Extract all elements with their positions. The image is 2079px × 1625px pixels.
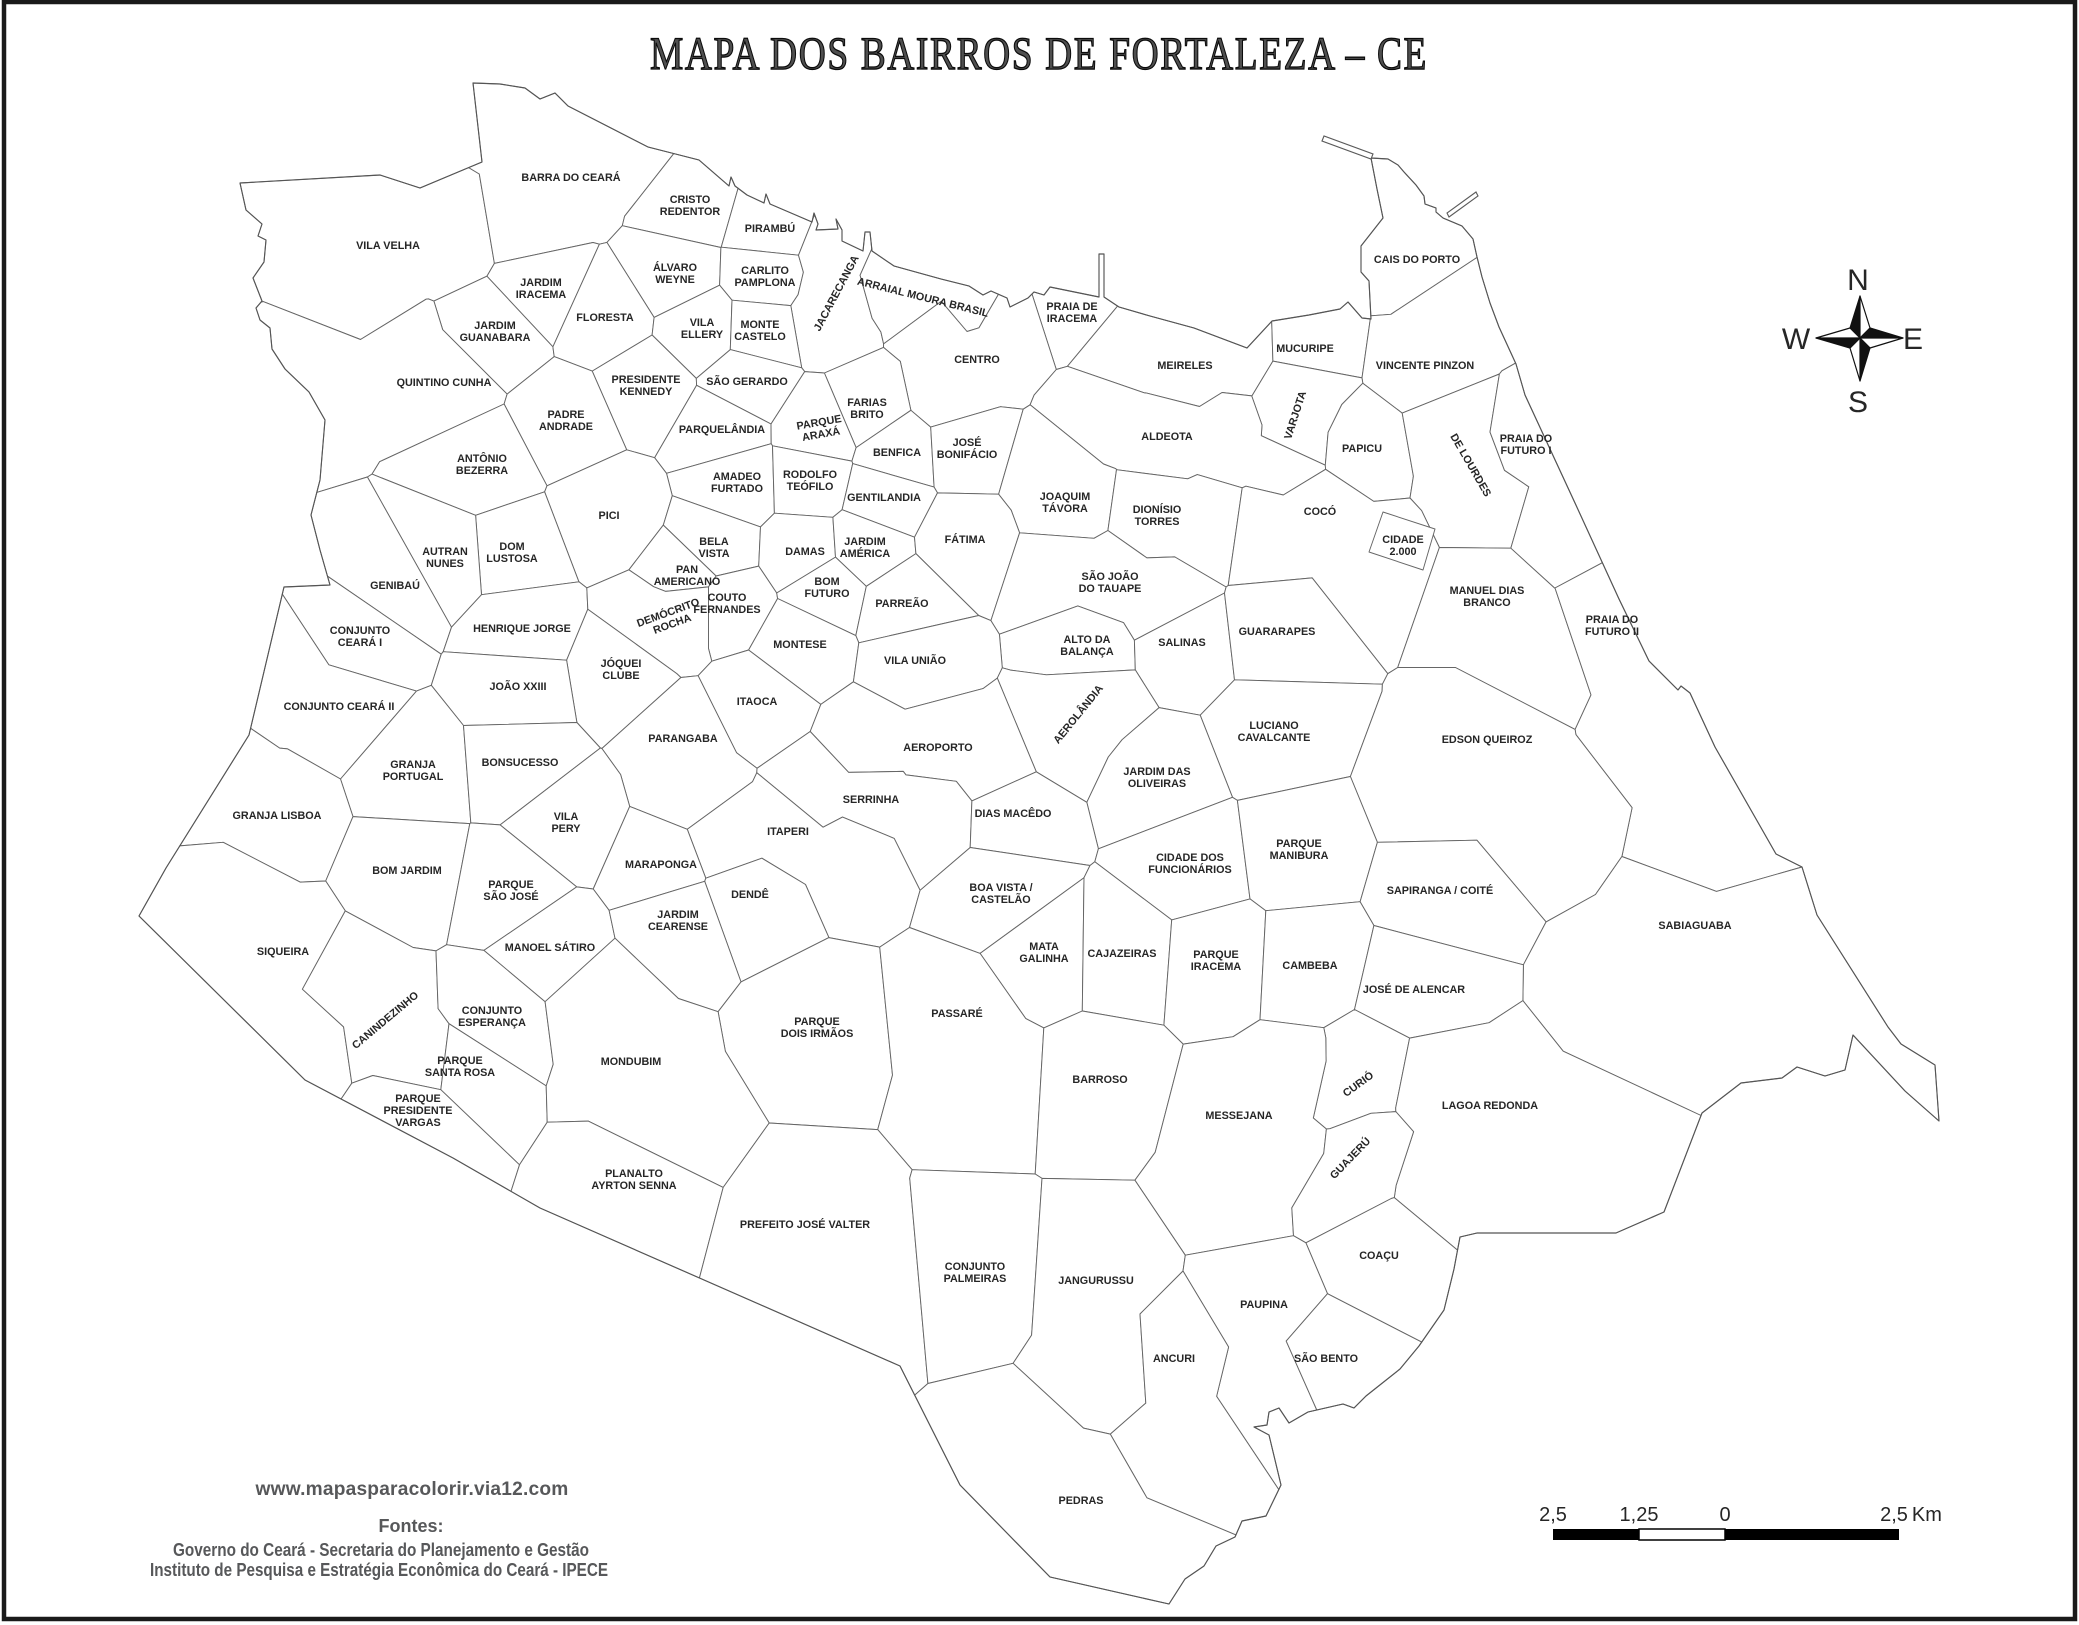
svg-text:VINCENTE PINZON: VINCENTE PINZON	[1376, 360, 1475, 372]
svg-text:ALTO DA: ALTO DA	[1064, 634, 1111, 646]
svg-text:GRANJA: GRANJA	[390, 759, 436, 771]
svg-text:JOSÉ DE ALENCAR: JOSÉ DE ALENCAR	[1363, 983, 1465, 996]
svg-text:AEROPORTO: AEROPORTO	[903, 742, 972, 754]
svg-text:COAÇU: COAÇU	[1359, 1250, 1399, 1262]
svg-text:GALINHA: GALINHA	[1019, 953, 1068, 965]
svg-text:Governo do Ceará - Secretaria: Governo do Ceará - Secretaria do Planeja…	[173, 1540, 589, 1560]
svg-text:TORRES: TORRES	[1135, 516, 1180, 528]
svg-text:DOM: DOM	[499, 541, 524, 553]
svg-text:2.000: 2.000	[1389, 546, 1416, 558]
svg-text:CEARÁ I: CEARÁ I	[338, 636, 382, 649]
svg-text:BARROSO: BARROSO	[1072, 1074, 1127, 1086]
svg-text:ANCURI: ANCURI	[1153, 1353, 1195, 1365]
svg-text:BOM: BOM	[814, 576, 839, 588]
svg-text:DIAS MACÊDO: DIAS MACÊDO	[975, 807, 1052, 820]
svg-text:CONJUNTO: CONJUNTO	[462, 1005, 522, 1017]
svg-text:PEDRAS: PEDRAS	[1059, 1495, 1104, 1507]
svg-text:PAUPINA: PAUPINA	[1240, 1299, 1288, 1311]
svg-text:ITAPERI: ITAPERI	[767, 826, 809, 838]
svg-text:ESPERANÇA: ESPERANÇA	[458, 1017, 526, 1029]
svg-text:PICI: PICI	[599, 510, 620, 522]
svg-text:VARGAS: VARGAS	[395, 1117, 440, 1129]
svg-text:ÁLVARO: ÁLVARO	[653, 261, 697, 274]
svg-text:PARANGABA: PARANGABA	[648, 733, 718, 745]
svg-text:0: 0	[1719, 1504, 1730, 1526]
svg-text:PARQUE: PARQUE	[437, 1055, 482, 1067]
svg-text:HENRIQUE JORGE: HENRIQUE JORGE	[473, 623, 571, 635]
svg-text:JANGURUSSU: JANGURUSSU	[1058, 1275, 1134, 1287]
svg-text:PARQUE: PARQUE	[1193, 949, 1238, 961]
svg-text:2,5 Km: 2,5 Km	[1880, 1504, 1942, 1526]
svg-text:AMERICANO: AMERICANO	[654, 576, 721, 588]
svg-text:PAN: PAN	[676, 564, 698, 576]
svg-text:VILA UNIÃO: VILA UNIÃO	[884, 654, 946, 667]
svg-text:AMÉRICA: AMÉRICA	[840, 547, 891, 560]
svg-text:JARDIM: JARDIM	[520, 277, 561, 289]
svg-text:GUARARAPES: GUARARAPES	[1239, 626, 1316, 638]
svg-text:LUCIANO: LUCIANO	[1249, 720, 1298, 732]
svg-text:CONJUNTO: CONJUNTO	[330, 625, 390, 637]
svg-text:PARQUE: PARQUE	[1276, 838, 1321, 850]
svg-text:PORTUGAL: PORTUGAL	[383, 771, 444, 783]
svg-text:BONIFÁCIO: BONIFÁCIO	[937, 448, 998, 461]
svg-text:MONTESE: MONTESE	[773, 639, 826, 651]
svg-text:JARDIM DAS: JARDIM DAS	[1123, 766, 1190, 778]
svg-text:SIQUEIRA: SIQUEIRA	[257, 946, 309, 958]
svg-text:SAPIRANGA / COITÉ: SAPIRANGA / COITÉ	[1387, 884, 1493, 897]
svg-text:AYRTON SENNA: AYRTON SENNA	[591, 1180, 676, 1192]
svg-text:www.mapasparacolorir.via12.com: www.mapasparacolorir.via12.com	[254, 1479, 568, 1500]
svg-text:BEZERRA: BEZERRA	[456, 465, 508, 477]
svg-text:JOAQUIM: JOAQUIM	[1040, 491, 1090, 503]
svg-text:DAMAS: DAMAS	[785, 546, 825, 558]
svg-text:CAJAZEIRAS: CAJAZEIRAS	[1088, 948, 1157, 960]
svg-text:PARQUELÂNDIA: PARQUELÂNDIA	[679, 423, 765, 436]
svg-text:JARDIM: JARDIM	[844, 536, 885, 548]
svg-text:MANUEL DIAS: MANUEL DIAS	[1450, 585, 1525, 597]
svg-text:VILA: VILA	[554, 811, 579, 823]
svg-text:PRESIDENTE: PRESIDENTE	[384, 1105, 453, 1117]
svg-text:SALINAS: SALINAS	[1158, 637, 1205, 649]
svg-text:CAMBEBA: CAMBEBA	[1282, 960, 1337, 972]
svg-text:W: W	[1782, 323, 1811, 356]
svg-text:FLORESTA: FLORESTA	[576, 312, 634, 324]
svg-text:MANIBURA: MANIBURA	[1270, 850, 1329, 862]
svg-text:JARDIM: JARDIM	[657, 909, 698, 921]
svg-text:TEÓFILO: TEÓFILO	[787, 480, 834, 493]
svg-text:PARQUE: PARQUE	[395, 1093, 440, 1105]
svg-text:PLANALTO: PLANALTO	[605, 1168, 663, 1180]
svg-text:MEIRELES: MEIRELES	[1157, 360, 1212, 372]
svg-text:PRAIA DO: PRAIA DO	[1586, 614, 1638, 626]
svg-text:SABIAGUABA: SABIAGUABA	[1658, 920, 1731, 932]
svg-text:PRAIA DE: PRAIA DE	[1046, 301, 1097, 313]
svg-text:CIDADE DOS: CIDADE DOS	[1156, 852, 1224, 864]
svg-text:DENDÊ: DENDÊ	[731, 888, 769, 901]
svg-text:MUCURIPE: MUCURIPE	[1276, 343, 1334, 355]
svg-text:FUTURO II: FUTURO II	[1585, 626, 1639, 638]
svg-text:DO TAUAPE: DO TAUAPE	[1079, 583, 1142, 595]
svg-text:JÓQUEI: JÓQUEI	[601, 657, 642, 670]
svg-text:VILA: VILA	[690, 317, 715, 329]
svg-text:OLIVEIRAS: OLIVEIRAS	[1128, 778, 1186, 790]
svg-text:EDSON QUEIROZ: EDSON QUEIROZ	[1442, 734, 1533, 746]
svg-text:ITAOCA: ITAOCA	[737, 696, 778, 708]
svg-text:CONJUNTO: CONJUNTO	[945, 1261, 1005, 1273]
svg-text:JOSÉ: JOSÉ	[953, 436, 982, 449]
svg-text:CAVALCANTE: CAVALCANTE	[1238, 732, 1311, 744]
svg-text:CASTELO: CASTELO	[734, 331, 786, 343]
svg-text:MESSEJANA: MESSEJANA	[1205, 1110, 1272, 1122]
svg-text:CEARENSE: CEARENSE	[648, 921, 708, 933]
svg-text:REDENTOR: REDENTOR	[660, 206, 721, 218]
svg-text:BONSUCESSO: BONSUCESSO	[482, 757, 559, 769]
svg-text:JARDIM: JARDIM	[474, 320, 515, 332]
svg-text:DOIS IRMÃOS: DOIS IRMÃOS	[781, 1027, 854, 1040]
svg-text:JOÃO XXIII: JOÃO XXIII	[490, 680, 547, 693]
svg-text:VILA VELHA: VILA VELHA	[356, 240, 420, 252]
svg-text:MONDUBIM: MONDUBIM	[601, 1056, 662, 1068]
svg-text:COUTO: COUTO	[708, 592, 747, 604]
svg-text:ANDRADE: ANDRADE	[539, 421, 593, 433]
svg-text:VISTA: VISTA	[699, 548, 730, 560]
svg-text:GRANJA LISBOA: GRANJA LISBOA	[233, 810, 322, 822]
svg-text:PAPICU: PAPICU	[1342, 443, 1382, 455]
svg-text:N: N	[1847, 264, 1869, 297]
svg-text:NUNES: NUNES	[426, 558, 464, 570]
svg-text:ALDEOTA: ALDEOTA	[1141, 431, 1193, 443]
svg-text:MANOEL SÁTIRO: MANOEL SÁTIRO	[505, 941, 595, 954]
svg-text:IRACEMA: IRACEMA	[1191, 961, 1242, 973]
svg-text:Fontes:: Fontes:	[379, 1516, 444, 1536]
svg-text:MATA: MATA	[1029, 941, 1059, 953]
svg-text:E: E	[1903, 323, 1923, 356]
svg-text:FERNANDES: FERNANDES	[693, 604, 760, 616]
svg-text:IRACEMA: IRACEMA	[516, 289, 567, 301]
svg-text:BOM JARDIM: BOM JARDIM	[372, 865, 442, 877]
svg-text:FÁTIMA: FÁTIMA	[945, 533, 986, 546]
svg-text:BELA: BELA	[699, 536, 729, 548]
svg-text:AUTRAN: AUTRAN	[422, 546, 468, 558]
svg-text:GENIBAÚ: GENIBAÚ	[370, 579, 420, 592]
svg-text:LAGOA REDONDA: LAGOA REDONDA	[1442, 1100, 1538, 1112]
svg-text:TÁVORA: TÁVORA	[1042, 502, 1088, 515]
svg-text:2,5: 2,5	[1539, 1504, 1567, 1526]
svg-text:1,25: 1,25	[1620, 1504, 1659, 1526]
svg-text:ANTÔNIO: ANTÔNIO	[457, 452, 507, 465]
svg-text:COCÓ: COCÓ	[1304, 505, 1336, 518]
svg-text:CENTRO: CENTRO	[954, 354, 1000, 366]
svg-text:MONTE: MONTE	[741, 319, 780, 331]
svg-text:FUTURO: FUTURO	[805, 588, 850, 600]
svg-text:PERY: PERY	[551, 823, 581, 835]
svg-text:BRITO: BRITO	[850, 409, 883, 421]
svg-text:PASSARÉ: PASSARÉ	[931, 1007, 982, 1020]
svg-text:PALMEIRAS: PALMEIRAS	[944, 1273, 1007, 1285]
svg-text:DIONÍSIO: DIONÍSIO	[1133, 503, 1182, 516]
svg-text:PARQUE: PARQUE	[488, 879, 533, 891]
svg-text:BENFICA: BENFICA	[873, 447, 921, 459]
svg-text:SÃO JOÃO: SÃO JOÃO	[1082, 570, 1139, 583]
svg-text:WEYNE: WEYNE	[655, 274, 695, 286]
svg-text:PIRAMBÚ: PIRAMBÚ	[745, 222, 796, 235]
svg-text:PARQUE: PARQUE	[794, 1016, 839, 1028]
svg-text:MARAPONGA: MARAPONGA	[625, 859, 697, 871]
svg-text:GUANABARA: GUANABARA	[460, 332, 531, 344]
svg-text:ELLERY: ELLERY	[681, 329, 724, 341]
svg-text:RODOLFO: RODOLFO	[783, 469, 837, 481]
svg-text:CRISTO: CRISTO	[670, 194, 711, 206]
svg-text:MAPA DOS BAIRROS DE FORTALEZA: MAPA DOS BAIRROS DE FORTALEZA – CE	[650, 28, 1428, 80]
svg-text:KENNEDY: KENNEDY	[620, 386, 674, 398]
svg-text:PREFEITO JOSÉ VALTER: PREFEITO JOSÉ VALTER	[740, 1218, 870, 1231]
svg-text:SÃO BENTO: SÃO BENTO	[1294, 1352, 1358, 1365]
svg-text:FUTURO I: FUTURO I	[1501, 445, 1552, 457]
svg-text:BALANÇA: BALANÇA	[1060, 646, 1114, 658]
svg-text:PRAIA DO: PRAIA DO	[1500, 433, 1552, 445]
svg-text:CASTELÃO: CASTELÃO	[971, 893, 1030, 906]
svg-text:CIDADE: CIDADE	[1382, 534, 1423, 546]
svg-text:GENTILANDIA: GENTILANDIA	[847, 492, 921, 504]
svg-text:SÃO GERARDO: SÃO GERARDO	[706, 375, 788, 388]
svg-text:SERRINHA: SERRINHA	[843, 794, 900, 806]
svg-text:PARREÃO: PARREÃO	[875, 597, 928, 610]
svg-text:Instituto de Pesquisa e Estrat: Instituto de Pesquisa e Estratégia Econô…	[150, 1560, 608, 1580]
svg-text:CLUBE: CLUBE	[602, 670, 639, 682]
svg-text:CAIS DO PORTO: CAIS DO PORTO	[1374, 254, 1460, 266]
svg-text:SÃO JOSÉ: SÃO JOSÉ	[483, 890, 538, 903]
svg-text:PRESIDENTE: PRESIDENTE	[612, 374, 681, 386]
svg-text:QUINTINO CUNHA: QUINTINO CUNHA	[397, 377, 492, 389]
svg-text:PAMPLONA: PAMPLONA	[735, 277, 796, 289]
svg-text:FARIAS: FARIAS	[847, 397, 887, 409]
svg-text:BRANCO: BRANCO	[1463, 597, 1510, 609]
svg-text:CONJUNTO CEARÁ II: CONJUNTO CEARÁ II	[284, 700, 395, 713]
svg-text:LUSTOSA: LUSTOSA	[486, 553, 538, 565]
svg-text:PADRE: PADRE	[548, 409, 585, 421]
svg-text:BOA VISTA /: BOA VISTA /	[969, 882, 1032, 894]
svg-text:SANTA ROSA: SANTA ROSA	[425, 1067, 495, 1079]
svg-text:S: S	[1848, 386, 1868, 419]
svg-text:BARRA DO CEARÁ: BARRA DO CEARÁ	[521, 171, 620, 184]
svg-text:FUNCIONÁRIOS: FUNCIONÁRIOS	[1148, 863, 1231, 876]
svg-text:FURTADO: FURTADO	[711, 483, 763, 495]
svg-text:CARLITO: CARLITO	[741, 265, 789, 277]
svg-text:IRACEMA: IRACEMA	[1047, 313, 1098, 325]
svg-text:AMADEO: AMADEO	[713, 471, 761, 483]
